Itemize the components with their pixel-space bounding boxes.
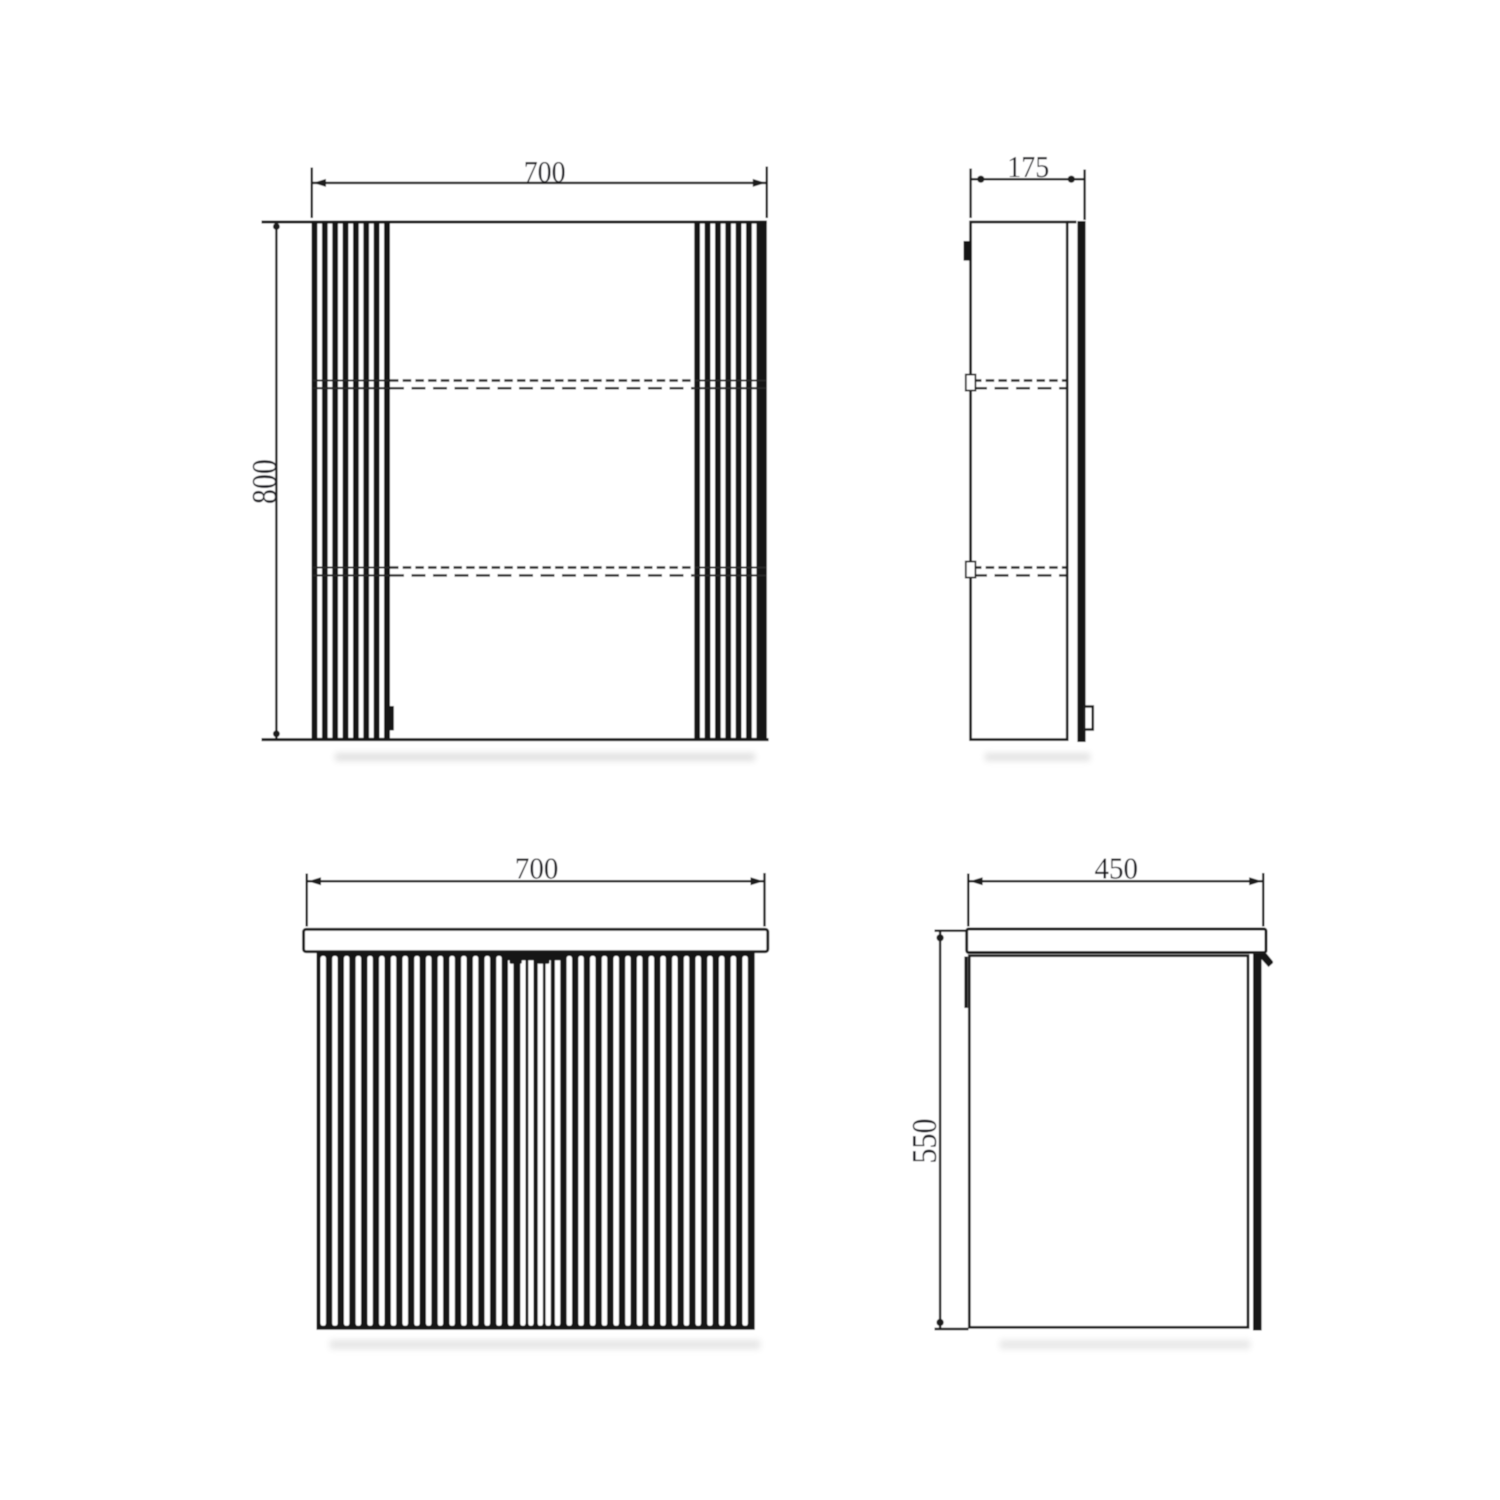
svg-text:175: 175: [1007, 151, 1049, 184]
svg-text:800: 800: [246, 459, 285, 504]
svg-text:700: 700: [515, 853, 558, 886]
svg-text:550: 550: [905, 1119, 943, 1164]
svg-text:700: 700: [524, 156, 566, 189]
svg-text:450: 450: [1095, 853, 1138, 886]
